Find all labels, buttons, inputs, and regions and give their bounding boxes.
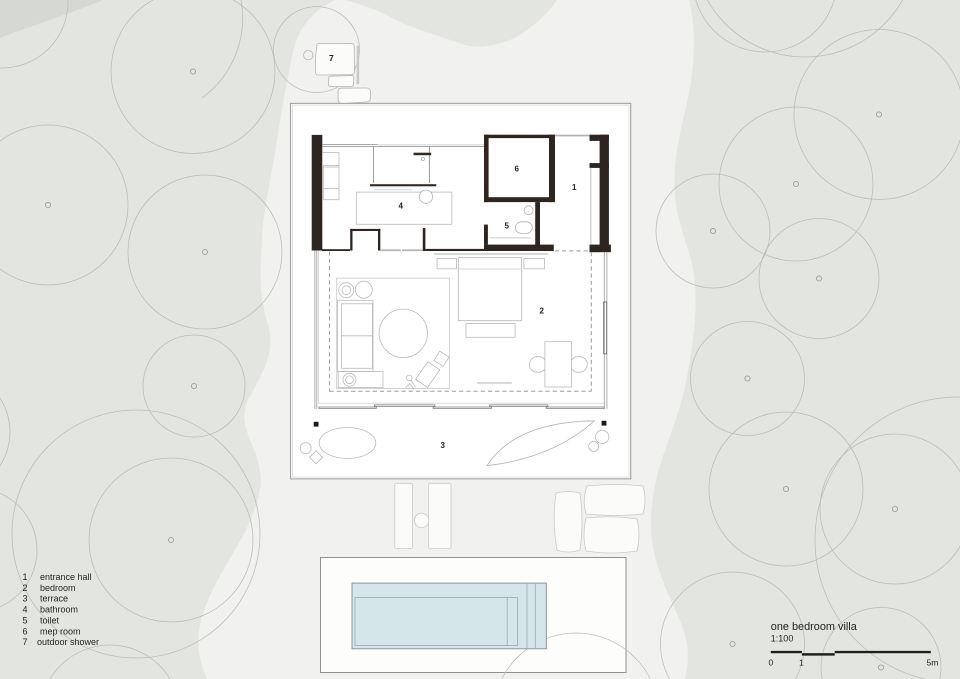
svg-text:1: 1 bbox=[799, 658, 804, 668]
svg-text:1: 1 bbox=[572, 183, 577, 192]
svg-text:outdoor shower: outdoor shower bbox=[37, 637, 99, 647]
svg-text:3: 3 bbox=[441, 441, 446, 450]
svg-text:4: 4 bbox=[23, 604, 28, 614]
svg-text:5: 5 bbox=[23, 616, 28, 626]
svg-text:2: 2 bbox=[540, 306, 545, 315]
svg-text:6: 6 bbox=[515, 165, 520, 174]
svg-text:mep room: mep room bbox=[40, 626, 81, 636]
svg-text:5: 5 bbox=[505, 221, 510, 230]
svg-text:toilet: toilet bbox=[40, 616, 60, 626]
svg-text:5m: 5m bbox=[927, 658, 939, 668]
svg-text:bedroom: bedroom bbox=[40, 583, 76, 593]
svg-text:6: 6 bbox=[23, 626, 28, 636]
svg-text:bathroom: bathroom bbox=[40, 604, 78, 614]
svg-text:3: 3 bbox=[23, 594, 28, 604]
svg-text:2: 2 bbox=[23, 583, 28, 593]
svg-text:1:100: 1:100 bbox=[771, 634, 794, 644]
svg-text:1: 1 bbox=[23, 572, 28, 582]
svg-text:7: 7 bbox=[329, 53, 334, 63]
svg-text:entrance hall: entrance hall bbox=[40, 572, 92, 582]
svg-text:0: 0 bbox=[769, 658, 774, 668]
svg-text:one bedroom villa: one bedroom villa bbox=[771, 621, 858, 633]
svg-text:7: 7 bbox=[23, 637, 28, 647]
svg-text:terrace: terrace bbox=[40, 594, 68, 604]
svg-text:4: 4 bbox=[399, 202, 404, 211]
